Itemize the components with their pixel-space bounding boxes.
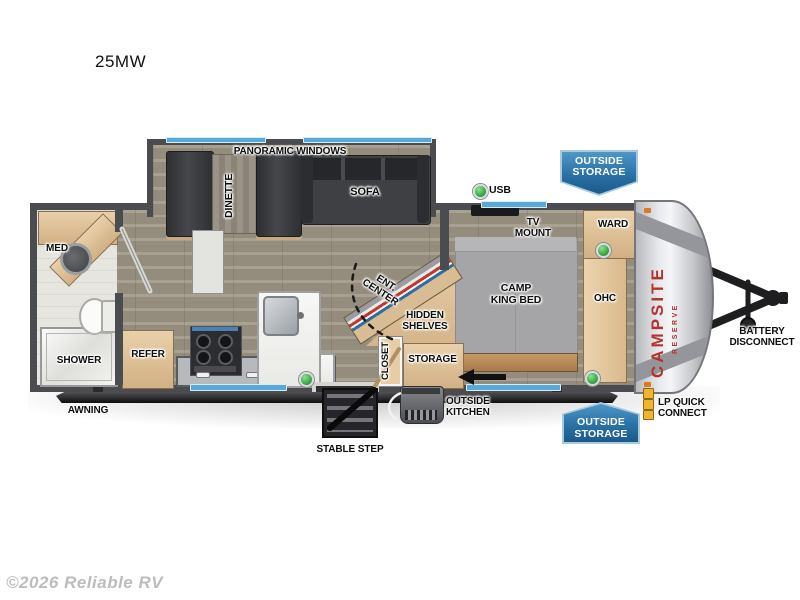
marker-light	[644, 382, 651, 387]
wardrobe-light-dot	[596, 243, 611, 258]
front-cap: CAMPSITE RESERVE	[634, 200, 714, 394]
ward-label: WARD	[592, 219, 634, 230]
kitchen-sink	[263, 296, 299, 336]
stable-step-rungs	[327, 394, 373, 432]
bedroom-light-dot	[585, 371, 600, 386]
floorplan-canvas: 25MW ©2026 Reliable RV PANORAMIC WINDOWS…	[0, 0, 800, 600]
tv-mount-label: TV MOUNT	[505, 217, 561, 239]
lp-quick-connect-fitting	[643, 399, 654, 410]
grill-top-band	[402, 388, 440, 394]
closet-label: CLOSET	[381, 340, 400, 383]
sofa-armrest-right	[417, 155, 429, 223]
sofa-armrest-left	[301, 155, 313, 223]
med-label: MED	[40, 243, 74, 254]
slide-window-left	[166, 137, 266, 143]
bedroom-wall	[440, 208, 449, 270]
hidden-shelves-label: HIDDEN SHELVES	[392, 310, 458, 332]
lp-quick-connect-fitting	[643, 388, 654, 399]
grill-vents	[405, 410, 437, 420]
dinette-label: DINETTE	[224, 162, 244, 230]
dinette-bench-right	[256, 151, 302, 237]
pantry-cabinet	[192, 230, 224, 294]
counter-light-dot	[299, 372, 314, 387]
stable-step-label: STABLE STEP	[308, 444, 392, 455]
burner	[218, 350, 233, 365]
storage-label: STORAGE	[405, 354, 460, 365]
bed-platform	[455, 353, 578, 372]
burner	[196, 334, 211, 349]
usb-label: USB	[489, 185, 523, 197]
stove-knob-strip	[192, 327, 238, 331]
slide-window-right	[303, 137, 432, 143]
outside-storage-badge-top-text: OUTSIDE STORAGE	[560, 150, 638, 196]
bathroom-wall-upper	[115, 208, 123, 232]
under-bed-storage	[403, 343, 464, 389]
sofa-back-cushions	[305, 158, 425, 180]
page-title: 25MW	[95, 52, 146, 72]
bedroom-window	[481, 201, 547, 208]
burner	[218, 334, 233, 349]
bedroom-lower-window	[466, 384, 561, 391]
marker-light	[644, 208, 651, 213]
outside-storage-badge-top: OUTSIDE STORAGE	[560, 150, 638, 196]
usb-indicator-dot	[473, 184, 488, 199]
brand-name: CAMPSITE	[648, 216, 668, 378]
brand-series: RESERVE	[672, 246, 679, 354]
battery-disconnect-label: BATTERY DISCONNECT	[720, 326, 800, 348]
oven-slot	[194, 366, 236, 372]
outside-storage-badge-bottom: OUTSIDE STORAGE	[562, 402, 640, 444]
hitch-coupler	[765, 290, 781, 306]
bathroom-wall-lower	[115, 293, 123, 385]
awning-label: AWNING	[60, 405, 116, 416]
overhead-cabinet	[583, 257, 627, 383]
outside-kitchen-label: OUTSIDE KITCHEN	[446, 396, 504, 418]
shower-label: SHOWER	[48, 355, 110, 366]
camp-king-bed-label: CAMP KING BED	[470, 283, 562, 307]
outside-storage-badge-bottom-text: OUTSIDE STORAGE	[562, 402, 640, 444]
panoramic-windows-label: PANORAMIC WINDOWS	[215, 146, 365, 157]
hitch-ball-mount	[779, 292, 788, 304]
ohc-label: OHC	[586, 293, 624, 304]
refer-label: REFER	[130, 349, 166, 360]
lp-quick-connect-label: LP QUICK CONNECT	[658, 397, 714, 419]
drawer-handle	[196, 372, 210, 378]
copyright-watermark: ©2026 Reliable RV	[6, 573, 163, 593]
dinette-bench-left	[166, 151, 214, 237]
kitchen-faucet	[297, 312, 304, 319]
burner	[196, 350, 211, 365]
sofa-label: SOFA	[335, 186, 395, 198]
kitchen-window	[190, 384, 287, 391]
lp-quick-connect-fitting	[643, 410, 654, 420]
